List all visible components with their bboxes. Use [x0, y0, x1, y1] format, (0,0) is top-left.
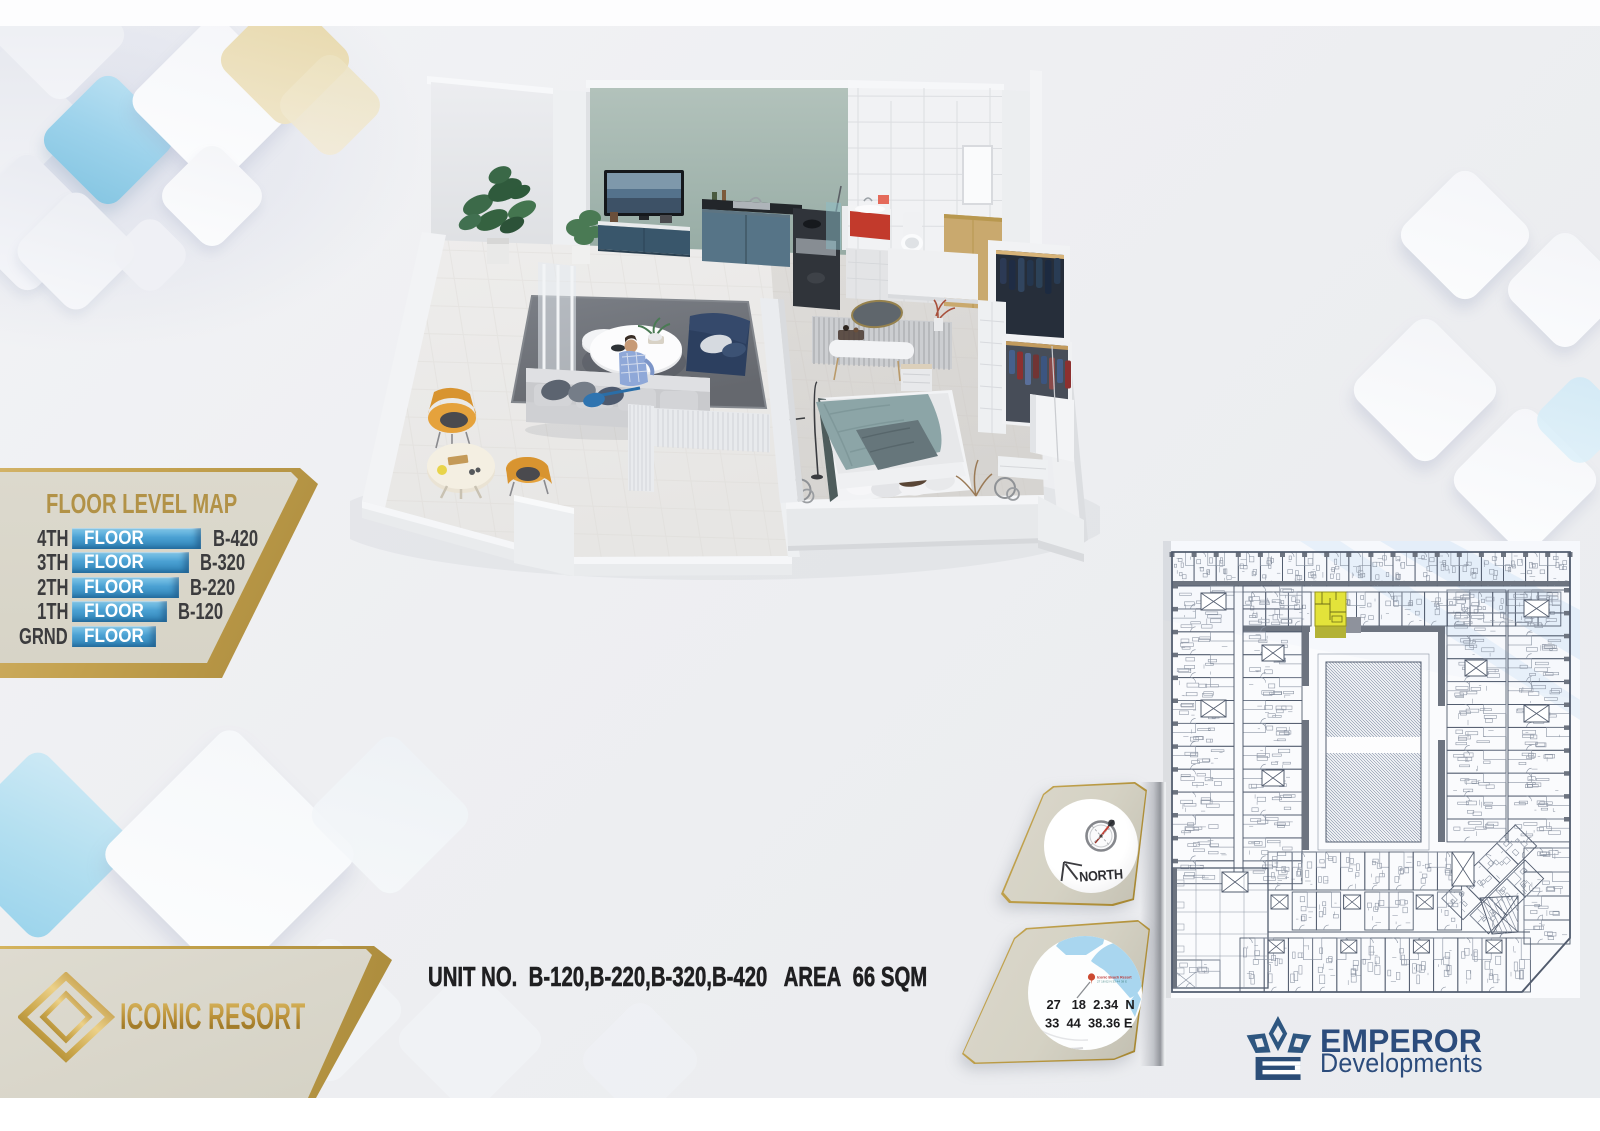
svg-text:NORTH: NORTH: [1079, 866, 1124, 885]
svg-text:27 18 02 N 33 44 38 E: 27 18 02 N 33 44 38 E: [1097, 980, 1127, 984]
svg-text:27 18 2.34 N: 27 18 2.34 N: [1047, 997, 1135, 1012]
svg-text:33 44 38.36 E: 33 44 38.36 E: [1045, 1016, 1133, 1031]
